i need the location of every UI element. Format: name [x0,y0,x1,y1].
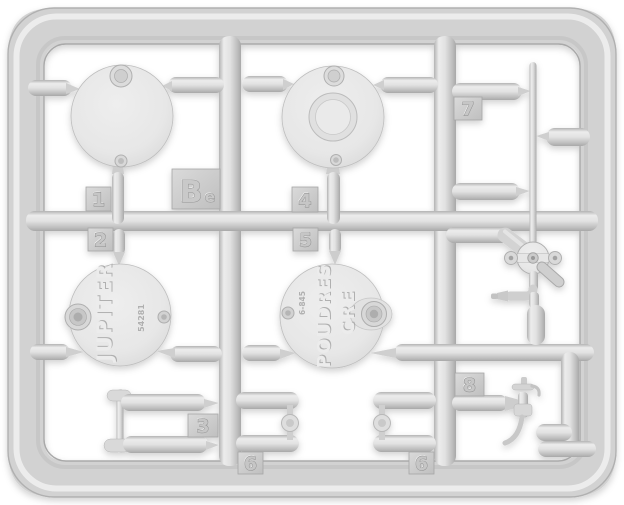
tab-6a-label: 6 [244,453,257,475]
part-lid-plain [71,65,173,167]
poudres-code: 6-845 [298,291,307,315]
runner-stub-bottom-right [538,441,596,457]
spout-nozzle [497,291,508,302]
part-tab-8: 8 8 [455,373,484,397]
part-tab-6a: 6 6 [238,452,263,475]
tab-2-label: 2 [94,230,107,252]
tab-3-label: 3 [196,416,209,438]
part-group-6-left [236,392,299,452]
tab-7-label: 7 [461,99,474,121]
part-tab-6b: 6 6 [409,452,434,475]
part-group-6-right [373,392,436,452]
jupiter-text: JUPITER [93,263,117,364]
sprue-photo: JUPITER JUPITER 54281 POUDRES POUDRES CR… [0,0,624,505]
sprue-letter-main: B [180,175,203,210]
sprue-letter-sub: e [205,188,215,206]
sprue-drawing: JUPITER JUPITER 54281 POUDRES POUDRES CR… [0,0,624,505]
tab-4-label: 4 [298,190,311,212]
part-tab-5: 5 5 [293,228,318,252]
poudres-text: POUDRES [314,264,335,368]
cre-text: CRE [338,289,359,334]
part-tab-4: 4 4 [292,187,318,212]
part-lid-ring [282,66,384,168]
part-tab-3: 3 3 [188,414,218,438]
sprue-letter-tab: B B e e [172,169,220,210]
part-tab-2: 2 2 [88,228,113,252]
tab-1-label: 1 [92,189,105,211]
tab-8-label: 8 [463,375,476,397]
thin-rod [530,62,537,247]
part-tab-7: 7 7 [454,97,482,121]
part-lid-jupiter: JUPITER JUPITER 54281 [65,262,171,367]
tab-6b-label: 6 [415,453,428,475]
part-tab-1: 1 1 [86,187,111,211]
jupiter-code: 54281 [137,304,146,332]
tab-5-label: 5 [299,230,312,252]
sprue-body: JUPITER JUPITER 54281 POUDRES POUDRES CR… [8,8,616,497]
faucet-spout [505,417,522,443]
